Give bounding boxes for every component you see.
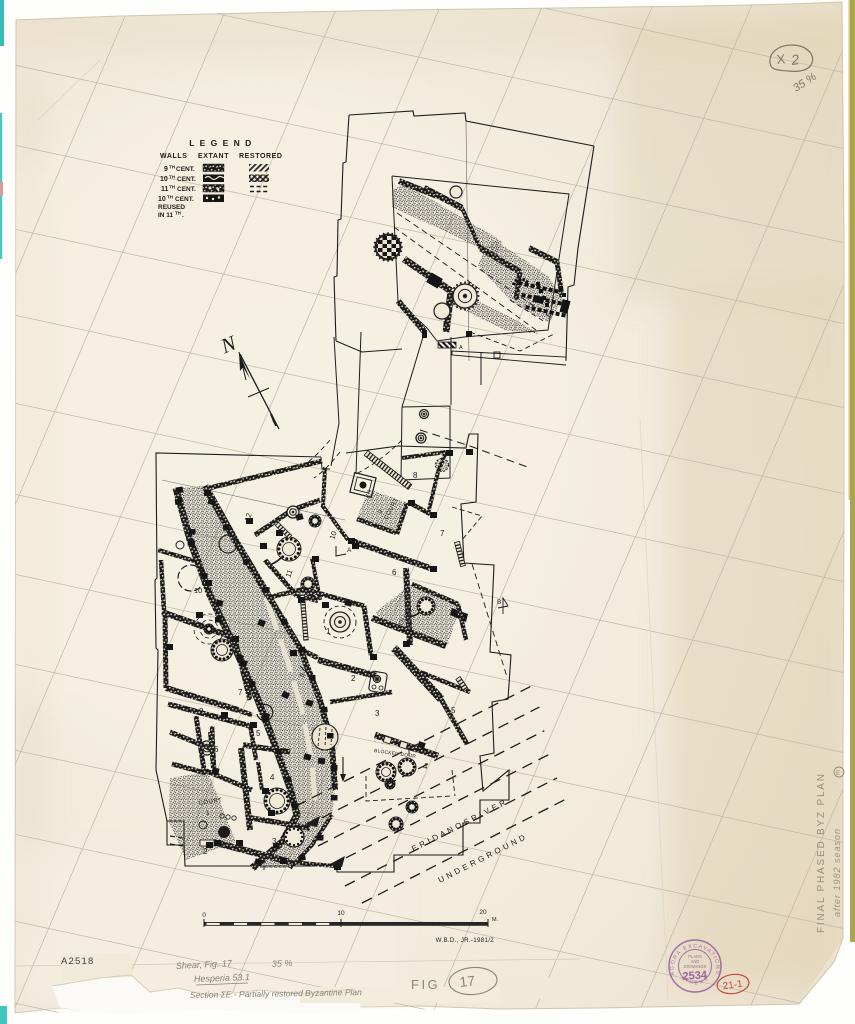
svg-text:2: 2 xyxy=(351,674,356,683)
svg-text:4: 4 xyxy=(270,773,275,782)
svg-text:RESTORED: RESTORED xyxy=(239,153,283,160)
svg-text:9: 9 xyxy=(164,166,168,173)
svg-text:6: 6 xyxy=(392,568,397,577)
svg-text:E: E xyxy=(836,771,840,777)
svg-text:10: 10 xyxy=(194,586,202,595)
svg-text:TH: TH xyxy=(175,211,181,216)
svg-text:.: . xyxy=(182,212,184,219)
svg-text:REUSED: REUSED xyxy=(158,204,185,211)
svg-text:M.: M. xyxy=(492,917,499,923)
svg-text:Hesperia 53.1: Hesperia 53.1 xyxy=(194,972,250,984)
svg-text:1: 1 xyxy=(206,810,210,817)
svg-text:2: 2 xyxy=(203,847,208,856)
svg-text:17: 17 xyxy=(459,972,476,990)
svg-text:TH: TH xyxy=(169,165,175,170)
svg-text:TH: TH xyxy=(167,195,173,200)
svg-text:TH: TH xyxy=(169,175,175,180)
svg-text:L E G E N D: L E G E N D xyxy=(189,138,253,148)
svg-text:CENT.: CENT. xyxy=(176,166,195,173)
svg-text:3: 3 xyxy=(375,709,380,718)
svg-text:11: 11 xyxy=(161,186,169,193)
svg-text:10: 10 xyxy=(158,196,166,203)
svg-text:FIG: FIG xyxy=(411,977,440,992)
svg-text:IN 11: IN 11 xyxy=(158,212,174,219)
svg-text:10: 10 xyxy=(337,910,345,917)
svg-text:0: 0 xyxy=(202,912,206,919)
svg-text:WALLS: WALLS xyxy=(160,153,188,160)
svg-text:B: B xyxy=(497,599,501,606)
svg-text:20: 20 xyxy=(479,909,487,916)
svg-text:after 1982 season: after 1982 season xyxy=(832,828,842,917)
svg-text:7: 7 xyxy=(440,529,445,538)
svg-text:A: A xyxy=(459,345,463,351)
svg-text:A2518: A2518 xyxy=(61,956,94,967)
svg-text:7: 7 xyxy=(238,688,243,697)
svg-text:CENT.: CENT. xyxy=(177,186,196,193)
svg-text:FINAL PHASED BYZ PLAN: FINAL PHASED BYZ PLAN xyxy=(816,772,827,933)
svg-text:8: 8 xyxy=(413,471,418,480)
svg-text:CENT.: CENT. xyxy=(175,196,194,203)
svg-text:1: 1 xyxy=(326,627,331,636)
svg-text:EXTANT: EXTANT xyxy=(198,153,229,160)
svg-text:5: 5 xyxy=(256,729,261,738)
svg-text:DRAWINGS: DRAWINGS xyxy=(684,964,707,969)
svg-text:W.B.D., JR.-1981/2: W.B.D., JR.-1981/2 xyxy=(436,937,495,944)
svg-text:35 %: 35 % xyxy=(272,958,293,969)
svg-text:TH: TH xyxy=(169,185,175,190)
svg-text:10: 10 xyxy=(160,176,168,183)
svg-text:X: X xyxy=(776,51,786,67)
svg-text:A: A xyxy=(347,547,352,554)
svg-text:2534: 2534 xyxy=(682,969,708,983)
svg-text:CENT.: CENT. xyxy=(177,176,196,183)
